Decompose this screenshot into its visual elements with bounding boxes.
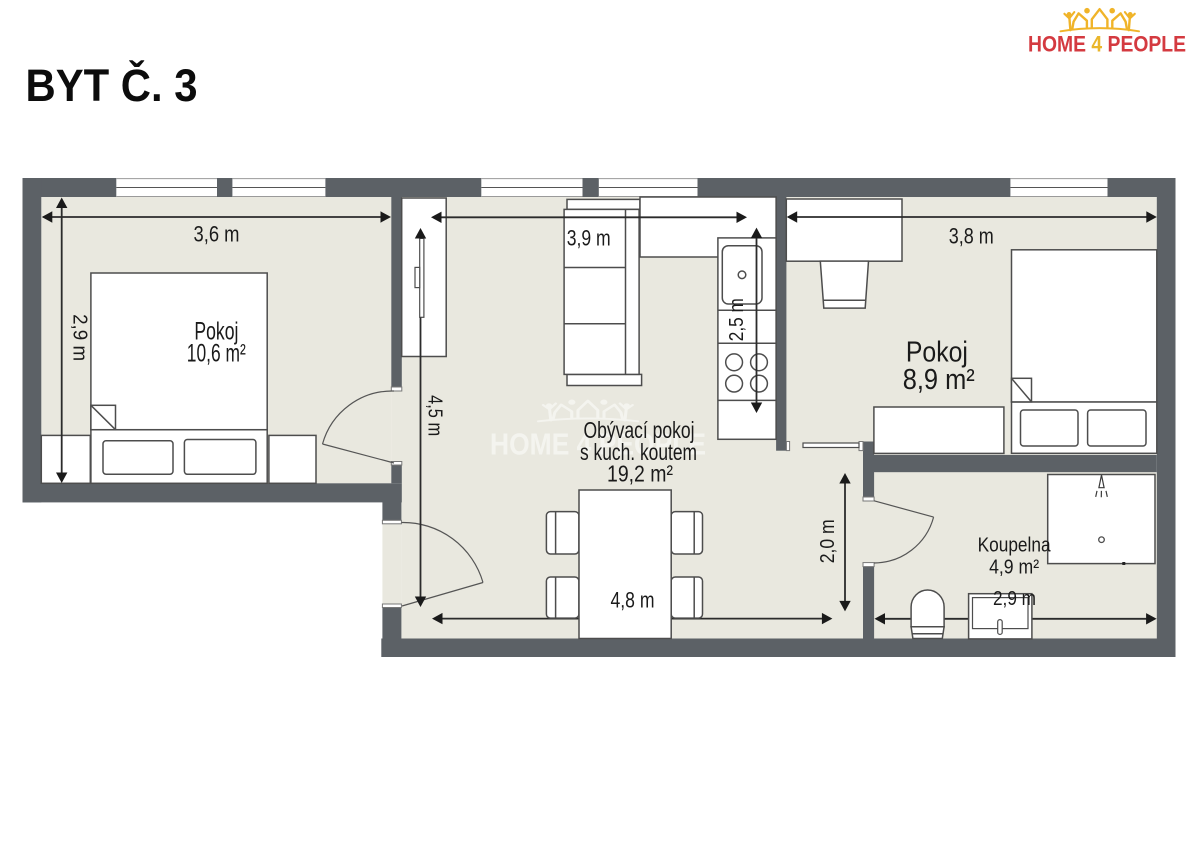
svg-text:8,9 m²: 8,9 m² xyxy=(903,364,975,396)
svg-text:4,5 m: 4,5 m xyxy=(424,395,446,436)
svg-text:19,2 m²: 19,2 m² xyxy=(607,460,673,486)
svg-text:4,9 m²: 4,9 m² xyxy=(989,557,1039,579)
svg-text:10,6 m²: 10,6 m² xyxy=(187,340,246,368)
svg-text:3,9 m: 3,9 m xyxy=(567,226,611,251)
svg-text:3,8 m: 3,8 m xyxy=(949,224,994,249)
svg-text:Koupelna: Koupelna xyxy=(978,535,1052,557)
svg-text:3,6 m: 3,6 m xyxy=(194,221,240,246)
svg-text:4,8 m: 4,8 m xyxy=(611,588,655,613)
svg-text:2,0 m: 2,0 m xyxy=(817,519,839,563)
svg-text:2,9 m: 2,9 m xyxy=(993,588,1036,610)
svg-text:2,9 m: 2,9 m xyxy=(68,314,90,361)
svg-text:HOME 4 PEOPLE: HOME 4 PEOPLE xyxy=(1028,32,1186,57)
svg-text:2,5 m: 2,5 m xyxy=(726,298,748,341)
svg-text:BYT Č. 3: BYT Č. 3 xyxy=(26,60,198,111)
